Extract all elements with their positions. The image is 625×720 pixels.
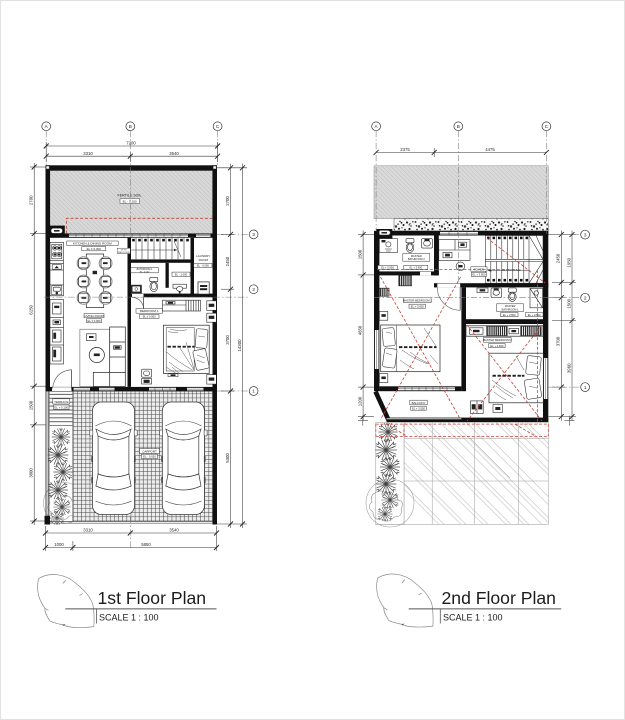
svg-text:2nd Floor Plan: 2nd Floor Plan	[442, 588, 556, 608]
svg-text:2: 2	[584, 295, 587, 300]
svg-text:1: 1	[252, 389, 255, 394]
svg-text:5300: 5300	[225, 453, 230, 463]
svg-text:2700: 2700	[225, 196, 230, 206]
svg-text:EL + 0.100: EL + 0.100	[55, 405, 69, 409]
svg-text:2450: 2450	[556, 253, 561, 263]
svg-text:EL - 5.200: EL - 5.200	[123, 199, 137, 203]
svg-text:BATHROOM 1: BATHROOM 1	[502, 307, 520, 311]
svg-text:EL + 3.600: EL + 3.600	[411, 304, 424, 308]
svg-text:3800: 3800	[29, 468, 34, 478]
svg-text:4475: 4475	[485, 147, 495, 152]
svg-text:1500: 1500	[566, 298, 571, 308]
svg-text:TERRACE: TERRACE	[54, 400, 68, 404]
svg-text:1st Floor Plan: 1st Floor Plan	[98, 588, 207, 608]
svg-text:SCALE 1 : 100: SCALE 1 : 100	[443, 613, 503, 623]
svg-text:2700: 2700	[29, 195, 34, 205]
svg-text:14300: 14300	[237, 339, 242, 352]
svg-text:CARPORT: CARPORT	[142, 449, 157, 453]
svg-text:B: B	[129, 124, 132, 129]
svg-text:3310: 3310	[83, 151, 93, 156]
svg-text:B: B	[457, 124, 460, 129]
svg-text:4650: 4650	[358, 325, 363, 335]
svg-text:DN TO 1ST FLR: DN TO 1ST FLR	[501, 268, 520, 272]
svg-text:MASTER BEDROOM 2: MASTER BEDROOM 2	[483, 338, 513, 342]
svg-text:LIVING ROOM: LIVING ROOM	[84, 314, 105, 318]
svg-text:2375: 2375	[400, 147, 410, 152]
svg-text:EL + 3.600: EL + 3.600	[528, 313, 541, 317]
svg-text:EL - 0.050: EL - 0.050	[140, 272, 150, 274]
svg-text:5850: 5850	[141, 542, 151, 547]
svg-text:EL - 0.050: EL - 0.050	[197, 264, 209, 268]
svg-text:7200: 7200	[126, 141, 136, 146]
svg-text:3540: 3540	[169, 528, 179, 533]
svg-text:EL + 3.550: EL + 3.550	[503, 313, 516, 317]
svg-text:3: 3	[584, 232, 587, 237]
svg-text:1000: 1000	[54, 542, 64, 547]
svg-text:3700: 3700	[225, 335, 230, 345]
svg-text:EL + 3.550: EL + 3.550	[412, 406, 425, 410]
svg-text:MASTER BEDROOM 1: MASTER BEDROOM 1	[403, 299, 433, 303]
svg-text:2: 2	[252, 287, 255, 292]
svg-text:EL ± 0.000: EL ± 0.000	[88, 319, 101, 323]
svg-text:SCALE 1 : 100: SCALE 1 : 100	[99, 613, 159, 623]
svg-text:3960: 3960	[566, 363, 571, 373]
svg-text:1200: 1200	[358, 396, 363, 406]
svg-text:3540: 3540	[169, 151, 179, 156]
svg-text:1950: 1950	[566, 257, 571, 267]
svg-text:EL + 3.550: EL + 3.550	[381, 266, 394, 270]
svg-text:BEDROOM 1: BEDROOM 1	[140, 309, 159, 313]
svg-text:KITCHEN & DINING ROOM: KITCHEN & DINING ROOM	[73, 242, 112, 246]
svg-text:EL ± 0.000: EL ± 0.000	[143, 315, 156, 319]
svg-text:BALCONY: BALCONY	[412, 401, 426, 405]
svg-text:3: 3	[252, 232, 255, 237]
svg-text:1500: 1500	[358, 249, 363, 259]
svg-text:3700: 3700	[556, 336, 561, 346]
svg-text:EL + 3.600: EL + 3.600	[472, 273, 485, 277]
svg-text:EL + 3.600: EL + 3.600	[490, 344, 503, 348]
svg-text:BATHROOM 2: BATHROOM 2	[408, 257, 426, 261]
svg-text:FERTILE SOIL: FERTILE SOIL	[118, 194, 142, 198]
svg-text:ROOM: ROOM	[199, 258, 209, 262]
svg-text:6150: 6150	[29, 305, 34, 315]
svg-text:EL + 3.600: EL + 3.600	[410, 266, 423, 270]
svg-text:1500: 1500	[29, 400, 34, 410]
svg-text:EL - 0.050: EL - 0.050	[143, 455, 156, 459]
svg-text:1: 1	[584, 385, 587, 390]
svg-text:EL - 1.000: EL - 1.000	[175, 272, 188, 276]
svg-text:3310: 3310	[83, 528, 93, 533]
svg-text:2ND FLOOR: 2ND FLOOR	[118, 252, 130, 254]
svg-text:EL ± 0.000: EL ± 0.000	[87, 247, 102, 251]
svg-text:2450: 2450	[225, 256, 230, 266]
